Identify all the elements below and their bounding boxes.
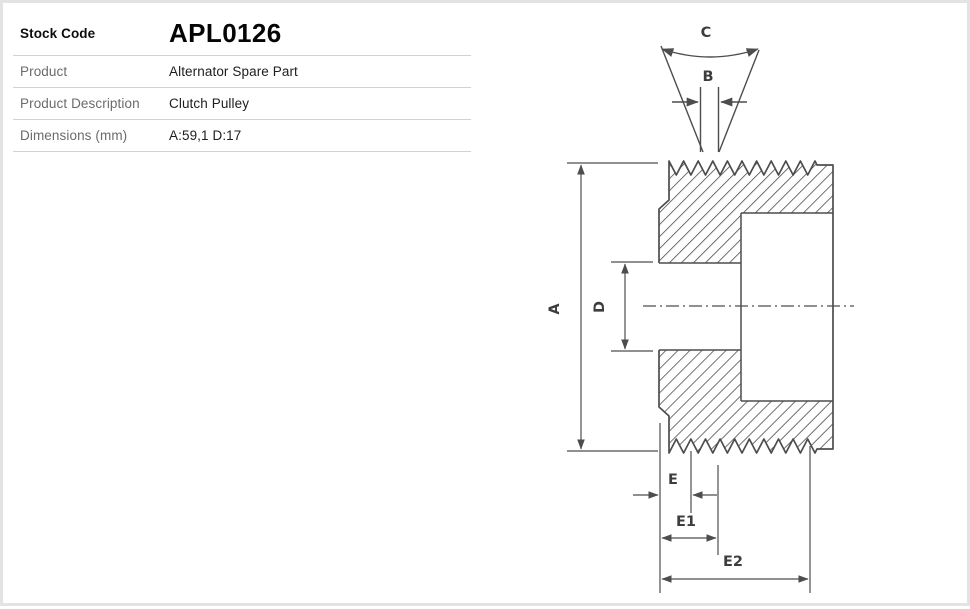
dim-label-d: D — [592, 301, 608, 313]
pulley-technical-drawing: C B A D E E1 E2 — [543, 3, 970, 609]
spec-row-product: Product Alternator Spare Part — [13, 56, 471, 88]
dim-label-b: B — [702, 69, 713, 85]
product-description-label: Product Description — [20, 96, 169, 111]
dim-label-a: A — [547, 303, 563, 315]
stock-code-label: Stock Code — [20, 26, 169, 41]
dim-label-e: E — [668, 472, 678, 488]
stock-code-value: APL0126 — [169, 19, 282, 48]
dimension-a — [567, 163, 658, 451]
dim-label-e2: E2 — [723, 554, 743, 570]
spec-row-product-description: Product Description Clutch Pulley — [13, 88, 471, 120]
spec-table: Stock Code APL0126 Product Alternator Sp… — [13, 13, 471, 152]
product-description-value: Clutch Pulley — [169, 96, 249, 111]
dim-label-e1: E1 — [676, 514, 696, 530]
section-hatching — [659, 161, 833, 453]
spec-row-dimensions: Dimensions (mm) A:59,1 D:17 — [13, 120, 471, 152]
dimensions-value: A:59,1 D:17 — [169, 128, 241, 143]
dim-label-c: C — [701, 25, 712, 41]
product-label: Product — [20, 64, 169, 79]
groove-angle-arc — [662, 49, 758, 57]
product-value: Alternator Spare Part — [169, 64, 298, 79]
groove-detail — [661, 46, 759, 152]
product-spec-page: { "table": { "rows": [ { "label": "Stock… — [0, 0, 970, 606]
dimensions-label: Dimensions (mm) — [20, 128, 169, 143]
spec-row-stock-code: Stock Code APL0126 — [13, 13, 471, 56]
